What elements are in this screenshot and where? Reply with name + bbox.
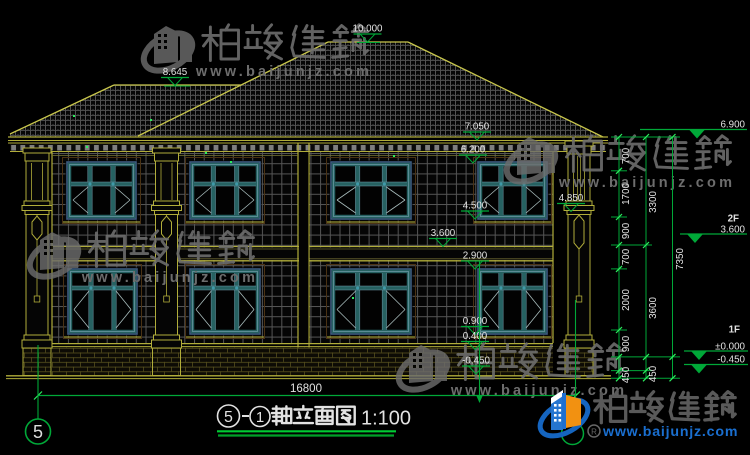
svg-text:1F: 1F <box>729 325 740 336</box>
svg-text:700: 700 <box>621 147 632 164</box>
svg-text:3.600: 3.600 <box>431 228 456 239</box>
svg-text:5: 5 <box>33 422 43 442</box>
svg-text:1:100: 1:100 <box>361 408 411 430</box>
svg-text:4.500: 4.500 <box>463 201 488 212</box>
svg-text:1: 1 <box>256 409 264 426</box>
svg-text:450: 450 <box>648 365 659 382</box>
svg-text:2000: 2000 <box>621 289 632 311</box>
svg-text:-0.450: -0.450 <box>462 356 490 367</box>
svg-text:8.645: 8.645 <box>163 67 188 78</box>
svg-text:www.baijunjz.com: www.baijunjz.com <box>81 270 258 286</box>
svg-text:0.400: 0.400 <box>463 331 488 342</box>
svg-text:1700: 1700 <box>621 183 632 205</box>
svg-text:5: 5 <box>224 409 233 426</box>
svg-text:16800: 16800 <box>290 383 322 395</box>
svg-text:7350: 7350 <box>675 248 686 270</box>
svg-text:0.900: 0.900 <box>463 316 488 327</box>
svg-text:7.050: 7.050 <box>465 122 490 133</box>
svg-text:700: 700 <box>621 248 632 265</box>
svg-text:10.000: 10.000 <box>353 24 384 35</box>
svg-text:3300: 3300 <box>648 191 659 213</box>
svg-text:3600: 3600 <box>648 297 659 319</box>
svg-text:900: 900 <box>621 222 632 239</box>
svg-text:4.850: 4.850 <box>559 193 584 204</box>
svg-text:-0.450: -0.450 <box>717 355 745 366</box>
svg-text:2.900: 2.900 <box>463 251 488 262</box>
svg-text:450: 450 <box>621 366 632 383</box>
svg-text:www.baijunjz.com: www.baijunjz.com <box>195 64 372 80</box>
svg-text:900: 900 <box>621 335 632 352</box>
svg-text:6.200: 6.200 <box>461 145 486 156</box>
svg-text:www.baijunjz.com: www.baijunjz.com <box>602 424 738 440</box>
svg-text:R: R <box>591 428 597 437</box>
svg-text:6.900: 6.900 <box>720 120 745 131</box>
svg-text:2F: 2F <box>728 214 739 225</box>
